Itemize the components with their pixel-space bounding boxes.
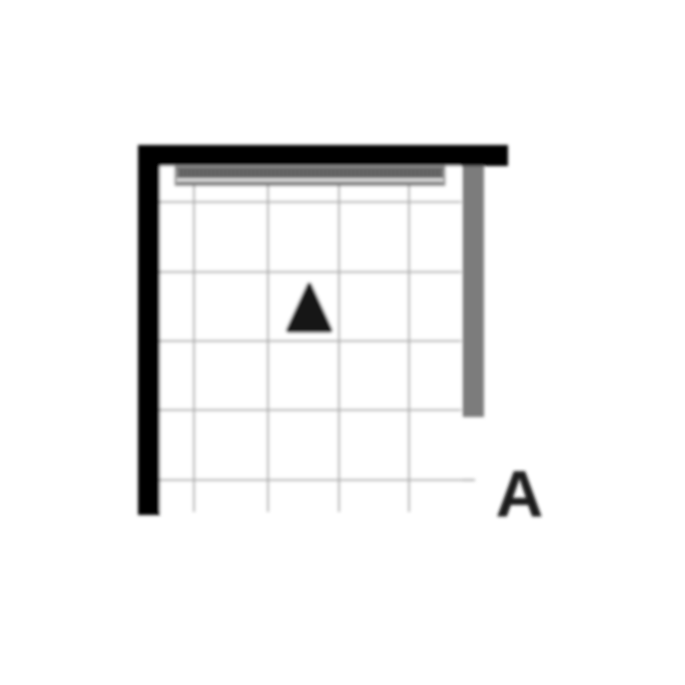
svg-text:A: A	[496, 457, 544, 531]
